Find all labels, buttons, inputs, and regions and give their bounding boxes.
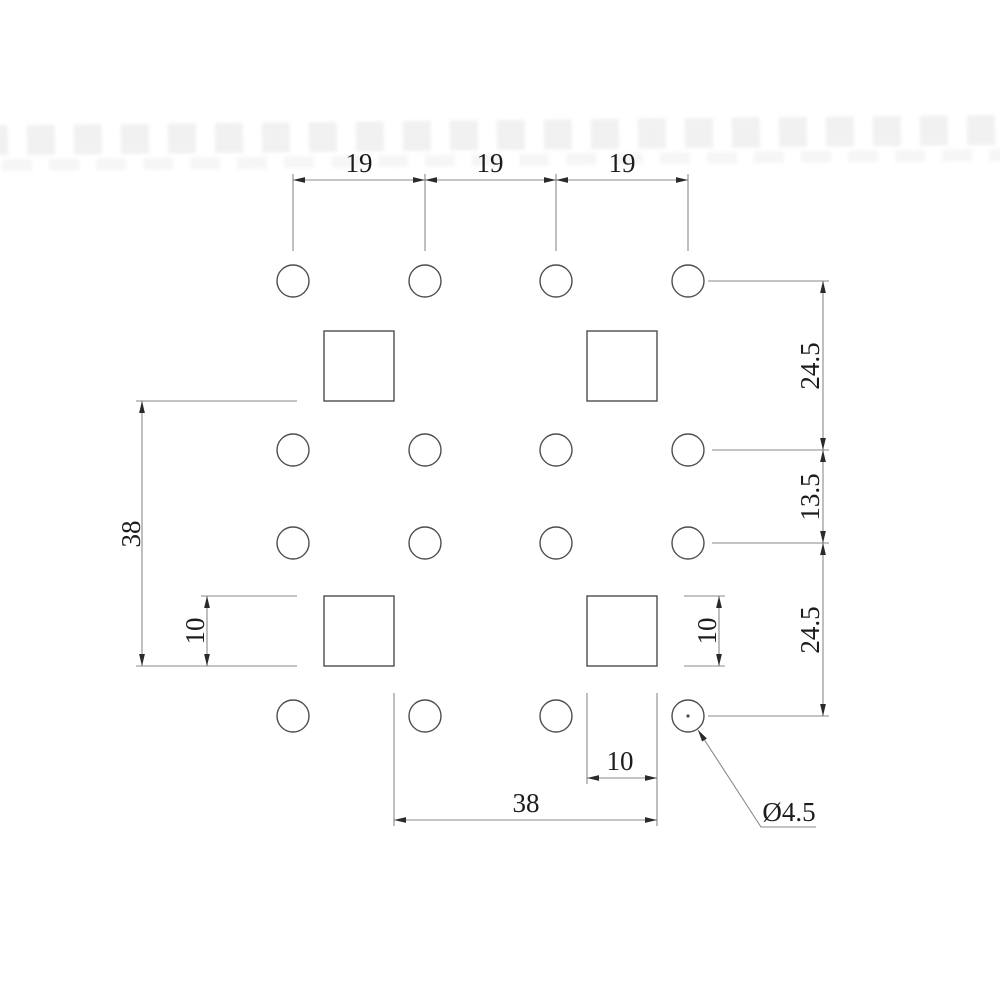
hole — [672, 434, 704, 466]
hole-grid — [277, 265, 704, 732]
square-pad — [587, 596, 657, 666]
dim-right-spacing: 24.5 13.5 24.5 — [708, 281, 829, 716]
dim-square-height-right: 10 — [684, 596, 725, 666]
hole — [277, 434, 309, 466]
dim-label-top-2: 19 — [477, 148, 504, 178]
dim-label-top-3: 19 — [609, 148, 636, 178]
hole-center-dot — [686, 714, 689, 717]
dim-label-overall-width: 38 — [513, 788, 540, 818]
hole — [409, 434, 441, 466]
hole — [409, 700, 441, 732]
hole — [540, 527, 572, 559]
technical-drawing-canvas: 19 19 19 24.5 13.5 24.5 38 — [0, 0, 1000, 1000]
hole — [277, 265, 309, 297]
hole — [672, 265, 704, 297]
hole — [409, 527, 441, 559]
dim-label-square-height-right: 10 — [692, 618, 722, 645]
dim-label-hole-diameter: Ø4.5 — [762, 797, 815, 827]
dim-label-square-height-left: 10 — [180, 618, 210, 645]
hole — [540, 265, 572, 297]
drawing-page: 19 19 19 24.5 13.5 24.5 38 — [0, 0, 1000, 1000]
dim-label-right-2: 13.5 — [795, 473, 825, 520]
square-pad — [587, 331, 657, 401]
dim-label-square-width: 10 — [607, 746, 634, 776]
leader-hole-diameter: Ø4.5 — [698, 730, 816, 827]
hole — [409, 265, 441, 297]
hole — [277, 527, 309, 559]
hole — [540, 434, 572, 466]
dim-square-width-bottom: 10 — [587, 693, 657, 826]
hole — [277, 700, 309, 732]
dim-top-spacing: 19 19 19 — [293, 148, 688, 251]
square-pad — [324, 596, 394, 666]
square-pads — [324, 331, 657, 666]
dim-label-right-1: 24.5 — [795, 342, 825, 389]
dim-label-overall-height: 38 — [116, 521, 146, 548]
square-pad — [324, 331, 394, 401]
hole — [672, 527, 704, 559]
hole — [540, 700, 572, 732]
dim-label-right-3: 24.5 — [795, 606, 825, 653]
dim-square-height-left: 10 — [180, 596, 297, 666]
dim-label-top-1: 19 — [346, 148, 373, 178]
